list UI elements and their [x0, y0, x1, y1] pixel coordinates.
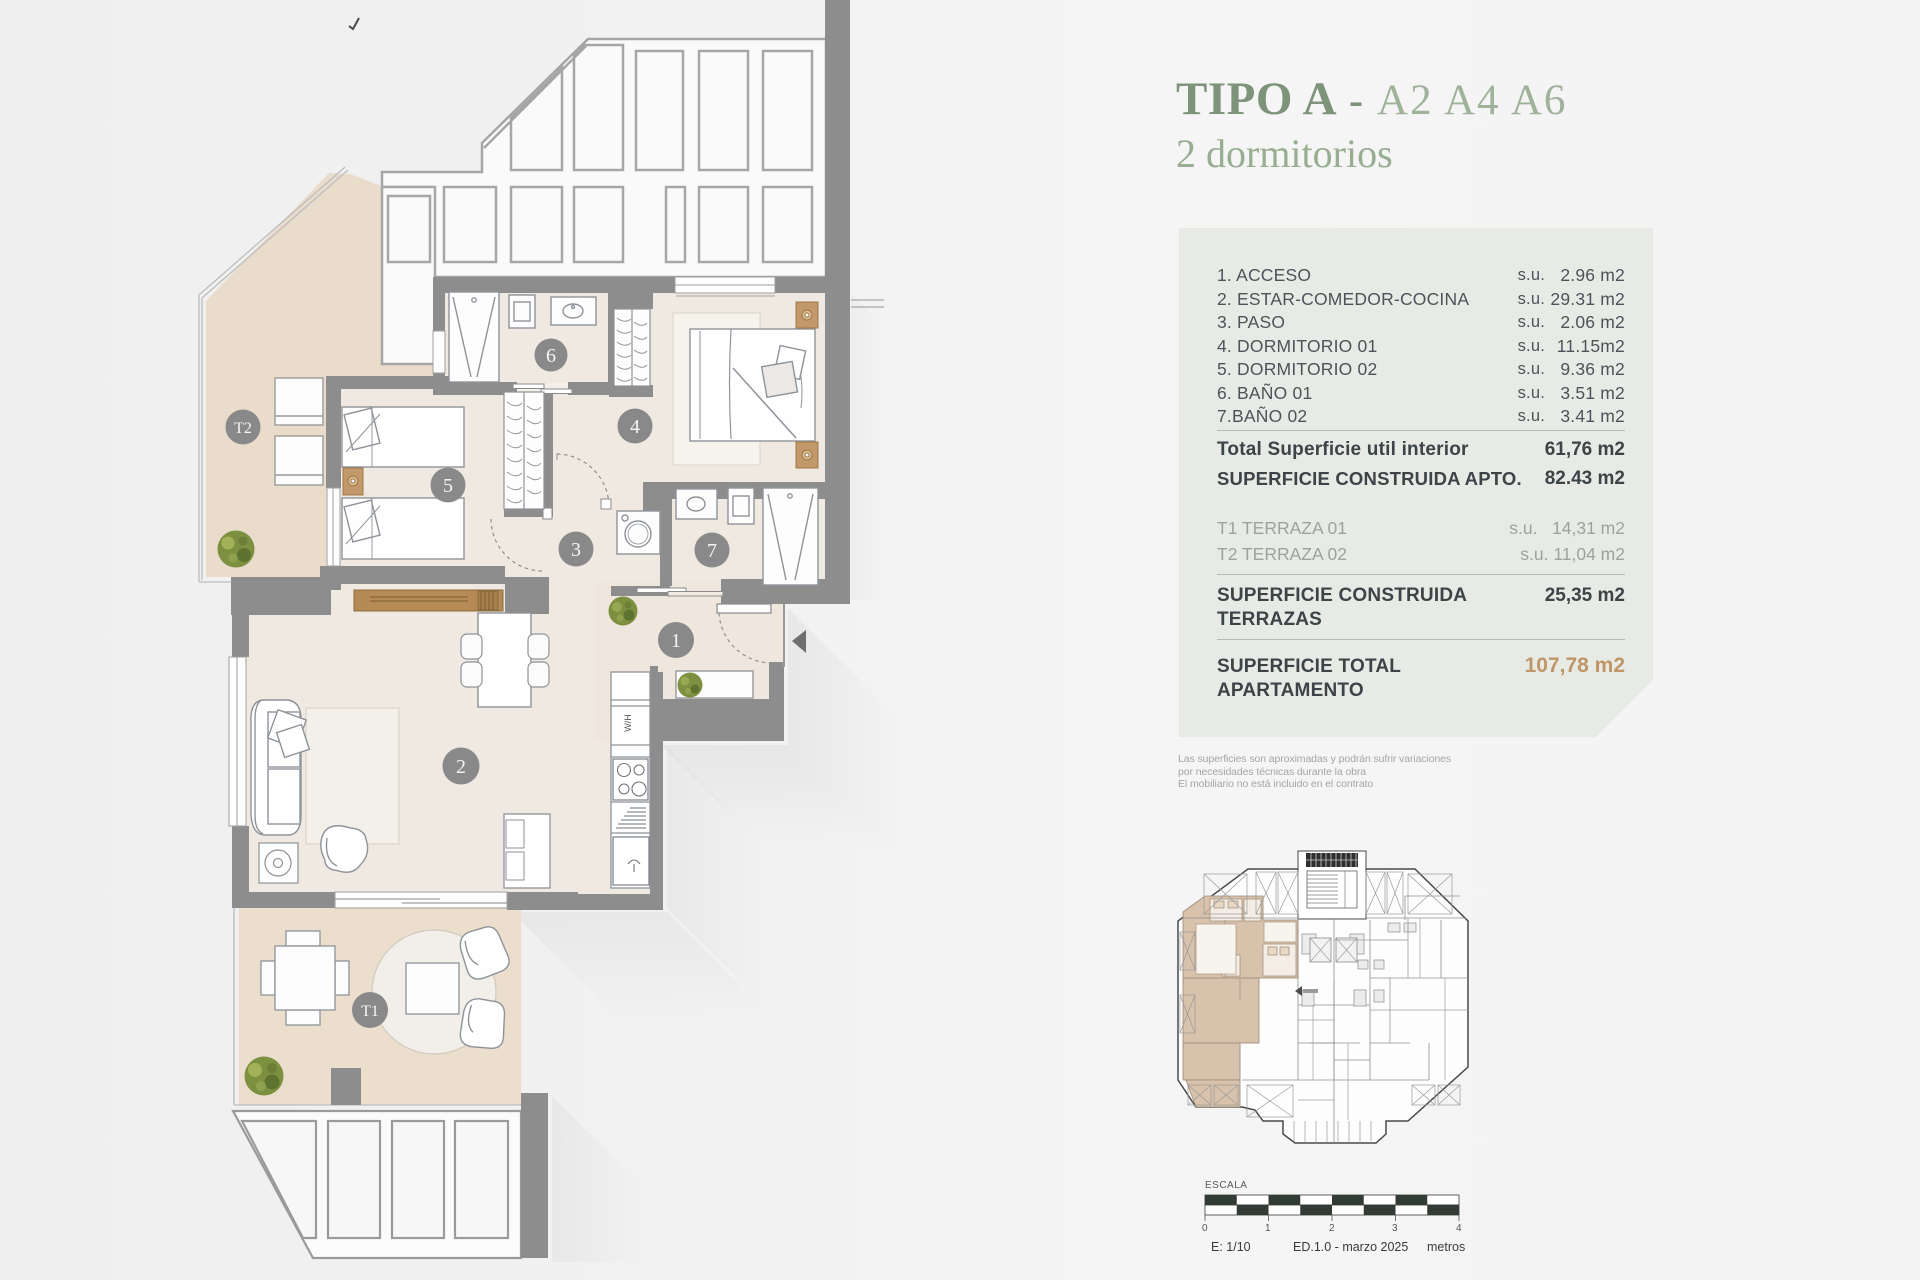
svg-text:2: 2: [1329, 1223, 1335, 1234]
svg-text:3: 3: [1392, 1223, 1398, 1234]
svg-text:2: 2: [456, 756, 466, 778]
svg-text:0: 0: [1202, 1223, 1208, 1234]
svg-text:4: 4: [1456, 1223, 1462, 1234]
svg-text:5: 5: [443, 475, 453, 497]
svg-text:6: 6: [546, 345, 556, 367]
svg-text:E: 1/10: E: 1/10: [1211, 1240, 1251, 1254]
svg-text:ESCALA: ESCALA: [1205, 1180, 1247, 1191]
svg-text:3: 3: [571, 539, 581, 561]
svg-text:metros: metros: [1427, 1240, 1465, 1254]
svg-text:ED.1.0 - marzo 2025: ED.1.0 - marzo 2025: [1293, 1240, 1408, 1254]
svg-text:1: 1: [1265, 1223, 1271, 1234]
svg-text:W/H: W/H: [623, 714, 633, 732]
svg-text:T1: T1: [361, 1003, 379, 1020]
svg-text:7: 7: [707, 540, 717, 562]
svg-text:1: 1: [671, 630, 681, 652]
svg-text:T2: T2: [234, 420, 252, 437]
svg-text:4: 4: [630, 416, 640, 438]
